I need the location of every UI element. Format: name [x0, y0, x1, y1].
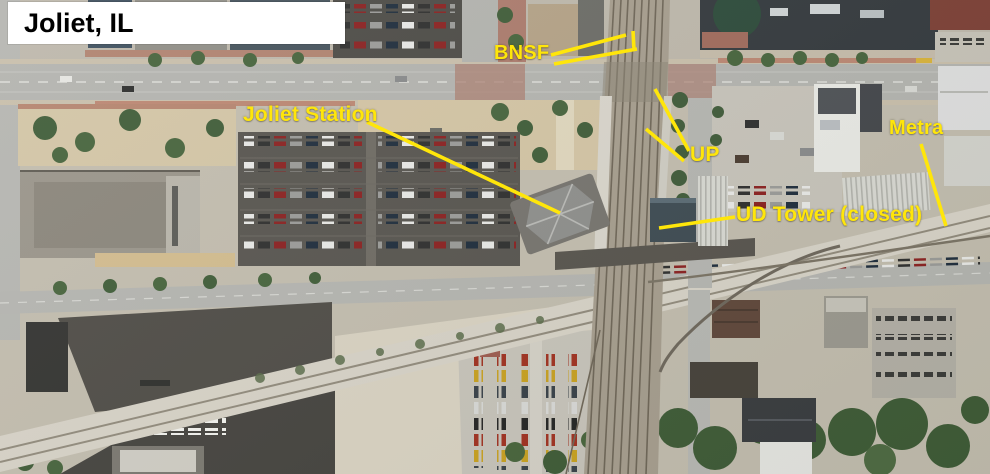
annotated-aerial-image: Joliet, IL BNSF Joliet Station UP UD Tow…: [0, 0, 990, 474]
label-joliet-station: Joliet Station: [243, 103, 378, 127]
title-text: Joliet, IL: [24, 8, 134, 39]
label-bnsf: BNSF: [494, 42, 549, 65]
street-left: [0, 0, 20, 340]
ud-tower-building: [650, 198, 696, 242]
title-box: Joliet, IL: [8, 2, 345, 44]
label-metra: Metra: [889, 117, 943, 140]
label-up: UP: [690, 143, 720, 167]
aerial-basemap: [0, 0, 990, 474]
park-plaza-left: [18, 104, 236, 166]
parking-lot-center: [238, 132, 520, 266]
label-ud-tower: UD Tower (closed): [736, 203, 922, 227]
